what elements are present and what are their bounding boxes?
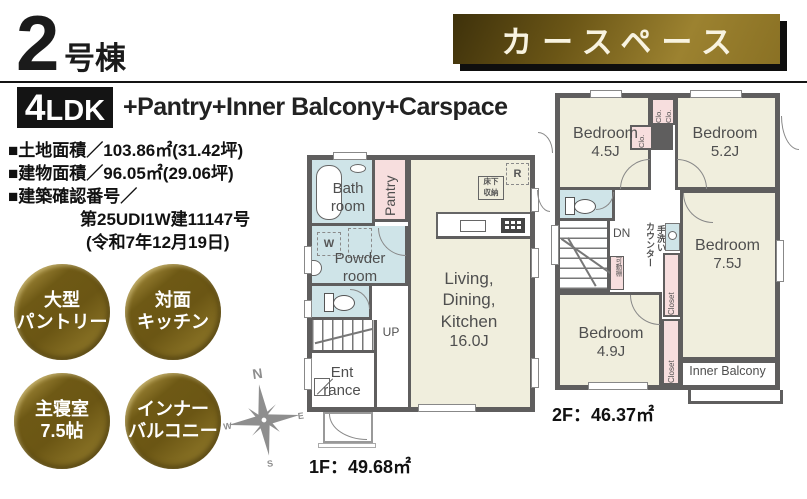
inner-balcony-label: Inner Balcony	[680, 364, 775, 379]
layout-badge-number: 4	[25, 87, 46, 129]
bath-faucet-icon	[350, 164, 366, 173]
wall-segment	[653, 125, 673, 150]
floor-storage-box: 床下 収納	[478, 176, 504, 200]
stair-fan-line	[567, 237, 596, 286]
stairs-down-label: DN	[613, 226, 643, 240]
window-mark	[531, 248, 539, 278]
spec-confirmation-number: 第25UDI1W建11147号	[8, 208, 250, 231]
feature-label: 主寝室	[35, 399, 89, 421]
bedroom-7-5-label: Bedroom 7.5J	[680, 236, 775, 273]
window-mark	[588, 382, 648, 390]
fridge-space-box: R	[506, 163, 529, 185]
carspace-banner-label: カースペース	[491, 17, 742, 62]
ldk-label: Living, Dining, Kitchen 16.0J	[408, 268, 530, 352]
window-mark	[590, 90, 622, 98]
feature-label: 対面	[155, 290, 191, 312]
stair-stringer-line	[315, 328, 374, 344]
window-mark	[304, 300, 312, 318]
window-mark	[690, 90, 742, 98]
window-mark	[551, 225, 559, 265]
spec-land-area: ■土地面積／103.86㎡(31.42坪)	[8, 139, 250, 162]
fridge-label: R	[514, 168, 522, 180]
feature-label: キッチン	[137, 312, 209, 334]
stove-icon	[501, 218, 525, 233]
entrance-porch	[323, 412, 373, 443]
kitchen-sink-icon	[460, 220, 486, 232]
spec-building-area: ■建物面積／96.05㎡(29.06坪)	[8, 162, 250, 185]
unit-number: 2	[16, 4, 57, 82]
floor-storage-label: 床下	[479, 177, 503, 188]
clo-label: Clo.	[654, 100, 663, 123]
stairs-up	[312, 320, 377, 353]
layout-badge: 4LDK	[17, 87, 113, 128]
feature-label: インナー	[137, 399, 209, 421]
bathroom-label: Bath room	[320, 180, 376, 216]
flyer-page: 2 号棟 カースペース 4LDK +Pantry+Inner Balcony+C…	[0, 0, 807, 499]
movable-shelf-label: 可動棚	[612, 257, 622, 289]
window-mark	[304, 246, 312, 274]
feature-badge-inner-balcony: インナー バルコニー	[125, 373, 221, 469]
spec-confirmation-label: ■建築確認番号／	[8, 185, 250, 208]
entrance-label: Ent rance	[312, 364, 372, 400]
carspace-banner: カースペース	[453, 14, 780, 64]
feature-badge-open-kitchen: 対面 キッチン	[125, 264, 221, 360]
door-arc-icon	[329, 414, 367, 440]
floorplan-2f: Clo. Clo. Clo. Closet Closet 可動棚 カウンター 手…	[555, 93, 780, 390]
feature-badge-large-pantry: 大型 パントリー	[14, 264, 110, 360]
feature-badge-master-bedroom: 主寝室 7.5帖	[14, 373, 110, 469]
svg-text:N: N	[251, 365, 263, 382]
movable-shelf-box: 可動棚	[610, 256, 624, 290]
svg-text:S: S	[266, 458, 273, 469]
closet-bedroom-4-9: Closet	[662, 319, 680, 385]
floor1-area-label: 1F：49.68㎡	[309, 453, 411, 479]
compass-rose-icon: N E W S	[222, 364, 306, 470]
unit-number-suffix: 号棟	[64, 33, 126, 78]
window-mark	[304, 358, 312, 390]
sink-icon	[668, 231, 677, 240]
floor-storage-label: 収納	[479, 188, 503, 199]
feature-label: バルコニー	[128, 421, 218, 443]
layout-badge-type: LDK	[45, 95, 105, 128]
svg-text:W: W	[223, 421, 233, 432]
header-divider	[0, 81, 807, 83]
floorplan-1f: W 床下 収納 R Bath room Pantry Powder room U…	[307, 155, 535, 412]
closet-label: Closet	[667, 321, 676, 383]
spec-confirmation-date: (令和7年12月19日)	[8, 231, 250, 254]
powder-label: Powder room	[312, 250, 408, 286]
feature-label: 7.5帖	[40, 421, 83, 443]
window-mark	[418, 404, 476, 412]
counter-edge	[436, 236, 530, 239]
balcony-parapet	[688, 390, 783, 404]
floor2-area-label: 2F：46.37㎡	[552, 401, 654, 427]
closet-label: Closet	[667, 255, 676, 315]
stairs-down	[560, 221, 610, 292]
feature-label: パントリー	[17, 312, 108, 334]
kitchen-counter	[436, 212, 530, 238]
bedroom-4-5-label: Bedroom 4.5J	[560, 124, 651, 161]
washer-label: W	[324, 238, 334, 250]
feature-label: 大型	[44, 290, 80, 312]
stairs-up-label: UP	[378, 325, 404, 339]
svg-text:E: E	[297, 410, 304, 421]
bedroom-4-9-label: Bedroom 4.9J	[560, 324, 662, 361]
pantry-label: Pantry	[382, 168, 398, 216]
layout-extras: +Pantry+Inner Balcony+Carspace	[123, 93, 508, 122]
hand-wash-sink	[665, 223, 680, 251]
toilet-icon	[574, 199, 596, 214]
window-mark	[776, 240, 784, 282]
door-arc-icon	[781, 116, 799, 150]
spec-block: ■土地面積／103.86㎡(31.42坪) ■建物面積／96.05㎡(29.06…	[8, 139, 250, 254]
porch-step	[318, 443, 376, 448]
bedroom-5-2-label: Bedroom 5.2J	[675, 124, 775, 161]
closet-clo-upper: Clo. Clo.	[651, 98, 675, 125]
door-arc-icon	[538, 132, 553, 153]
window-mark	[333, 152, 367, 160]
window-mark	[531, 358, 539, 388]
clo-label: Clo.	[664, 100, 673, 123]
